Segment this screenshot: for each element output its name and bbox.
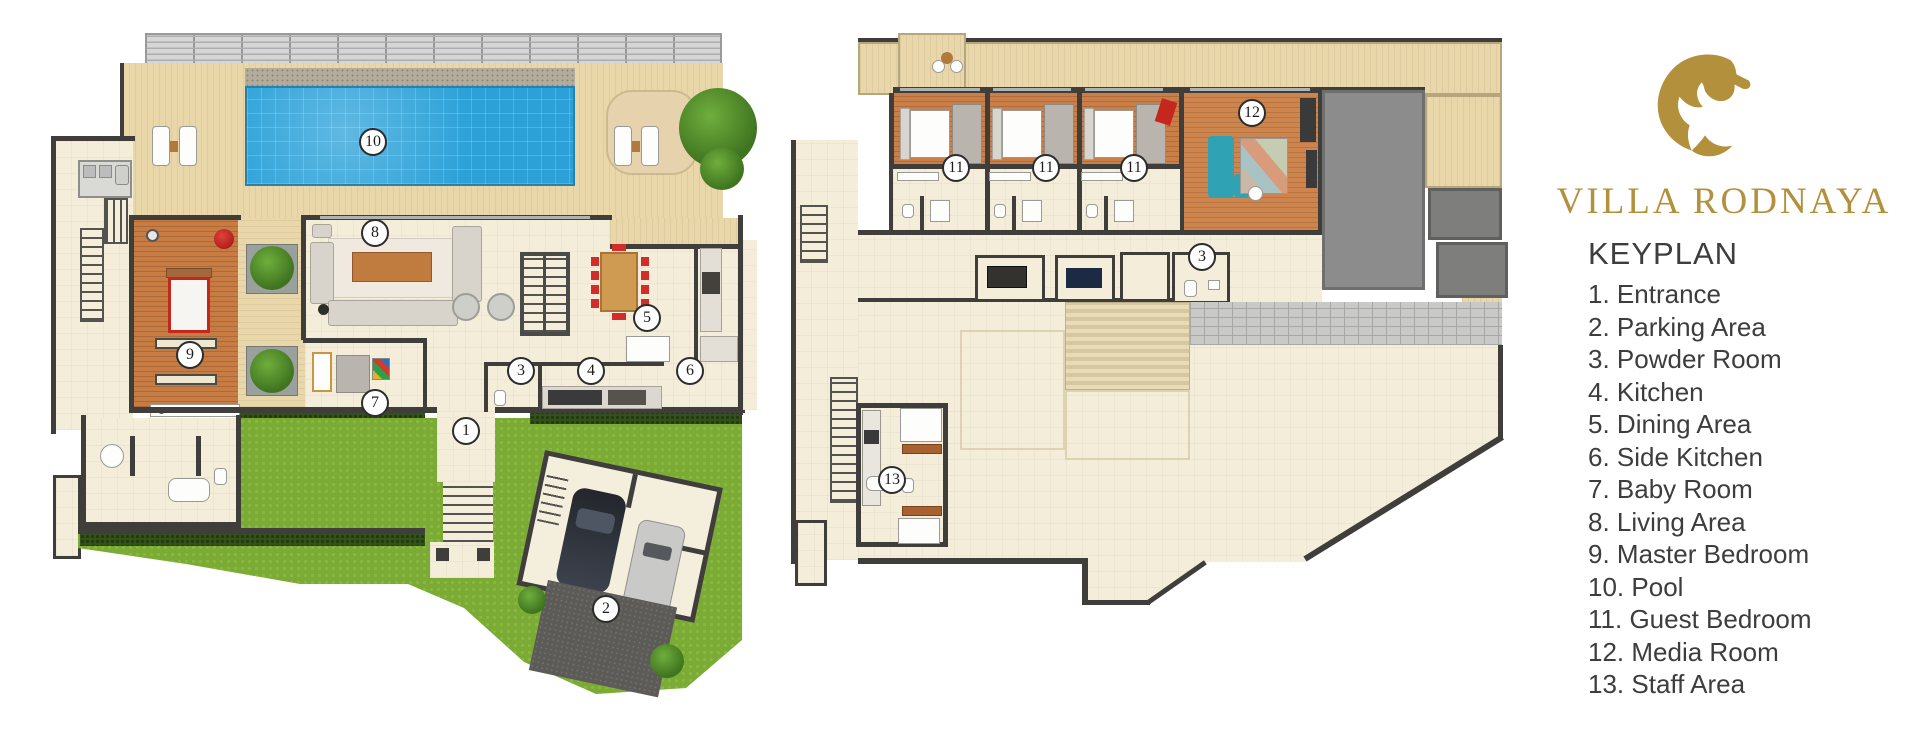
bed-headboard: [900, 108, 910, 160]
upper-terrace-east: [1425, 95, 1502, 188]
item-num: 3.: [1588, 344, 1610, 374]
keyplan-item: 1. Entrance: [1588, 278, 1812, 311]
item-label: Living Area: [1617, 507, 1746, 537]
terrace-notch-wall: [1082, 558, 1088, 604]
keyplan-item: 10. Pool: [1588, 571, 1812, 604]
marker-side-kitchen: 6: [676, 357, 704, 385]
marker-guest-bedroom-1: 11: [942, 154, 970, 182]
staff-wall: [943, 403, 948, 547]
marker-living-area: 8: [361, 219, 389, 247]
terrace-step-edge: [1065, 390, 1190, 460]
staff-wall: [856, 403, 861, 547]
item-num: 2.: [1588, 312, 1610, 342]
media-rug: [1240, 138, 1288, 194]
item-label: Entrance: [1617, 279, 1721, 309]
staff-stove: [864, 430, 879, 444]
roof-box: [1436, 242, 1508, 298]
item-num: 12.: [1588, 637, 1624, 667]
brick-path: [1190, 302, 1502, 345]
guest-bed: [1002, 110, 1042, 158]
keyplan-item: 13. Staff Area: [1588, 668, 1812, 701]
powder-toilet: [1184, 280, 1197, 297]
terrace-south-wall: [858, 558, 1084, 564]
marker-kitchen: 4: [577, 357, 605, 385]
villa-title: VILLA RODNAYA: [1528, 180, 1920, 223]
keyplan-item: 9. Master Bedroom: [1588, 538, 1812, 571]
item-num: 1.: [1588, 279, 1610, 309]
keyplan-item: 4. Kitchen: [1588, 376, 1812, 409]
upper-garden-stair: [830, 377, 858, 503]
item-num: 7.: [1588, 474, 1610, 504]
item-num: 13.: [1588, 669, 1624, 699]
keyplan-legend: KEYPLAN 1. Entrance 2. Parking Area 3. P…: [1588, 236, 1812, 701]
keyplan-item: 12. Media Room: [1588, 636, 1812, 669]
keyplan-heading: KEYPLAN: [1588, 236, 1812, 272]
staff-wardrobe: [902, 444, 942, 454]
guest-bed: [910, 110, 950, 158]
keyplan-item: 6. Side Kitchen: [1588, 441, 1812, 474]
terrace-east-wall: [1498, 345, 1503, 440]
balcony-table: [941, 52, 953, 64]
keyplan-item: 11. Guest Bedroom: [1588, 603, 1812, 636]
keyplan-item: 8. Living Area: [1588, 506, 1812, 539]
ensuite-partition: [1012, 196, 1016, 232]
roof-box: [1428, 188, 1502, 240]
ensuite-toilet: [994, 204, 1006, 218]
balcony-chair: [950, 60, 963, 73]
bed-headboard: [992, 108, 1002, 160]
ensuite-toilet: [1086, 204, 1098, 218]
item-num: 11.: [1588, 604, 1622, 634]
item-num: 10.: [1588, 572, 1624, 602]
terrace-notch-wall: [1082, 600, 1150, 605]
marker-upper-powder-room: 3: [1188, 243, 1216, 271]
item-label: Pool: [1631, 572, 1683, 602]
bed-headboard: [1084, 108, 1094, 160]
marker-pool: 10: [359, 128, 387, 156]
ensuite-vanity: [897, 172, 939, 181]
marker-staff-area: 13: [878, 466, 906, 494]
ensuite-toilet: [902, 204, 914, 218]
upper-west-wall: [791, 140, 796, 564]
hallway-north-wall: [858, 230, 1322, 235]
item-num: 5.: [1588, 409, 1610, 439]
media-glass: [1190, 88, 1310, 91]
horse-logo-icon: [1645, 52, 1767, 174]
item-label: Kitchen: [1617, 377, 1704, 407]
tv-console: [1300, 98, 1316, 142]
powder-sink: [1208, 280, 1220, 290]
terrace-step-edge: [960, 330, 1065, 450]
keyplan-item: 3. Powder Room: [1588, 343, 1812, 376]
item-num: 4.: [1588, 377, 1610, 407]
item-label: Side Kitchen: [1617, 442, 1763, 472]
floorplan-page: 1 2 3 4 5 6 7 8 9 10: [0, 0, 1920, 731]
flat-roof-void: [1322, 90, 1425, 290]
marker-dining-area: 5: [633, 304, 661, 332]
ensuite-vanity: [1081, 172, 1123, 181]
ensuite-partition: [1104, 196, 1108, 232]
ensuite-shower: [930, 200, 950, 222]
item-num: 9.: [1588, 539, 1610, 569]
staff-bed: [898, 518, 940, 544]
marker-media-room: 12: [1238, 99, 1266, 127]
marker-entrance: 1: [452, 417, 480, 445]
brand-panel: VILLA RODNAYA KEYPLAN 1. Entrance 2. Par…: [1520, 20, 1920, 720]
item-label: Guest Bedroom: [1629, 604, 1811, 634]
item-label: Master Bedroom: [1617, 539, 1809, 569]
keyplan-item: 2. Parking Area: [1588, 311, 1812, 344]
upper-stair: [800, 205, 828, 263]
linen-closet: [1120, 252, 1170, 302]
marker-baby-room: 7: [361, 389, 389, 417]
item-num: 6.: [1588, 442, 1610, 472]
slatted-deck: [1065, 302, 1190, 390]
item-label: Baby Room: [1617, 474, 1753, 504]
upper-store: [795, 520, 827, 586]
guest-bed: [1094, 110, 1134, 158]
media-sofa: [1208, 136, 1234, 198]
marker-guest-bedroom-3: 11: [1120, 154, 1148, 182]
keyplan-item: 5. Dining Area: [1588, 408, 1812, 441]
item-label: Media Room: [1631, 637, 1778, 667]
bedroom-glass: [1085, 88, 1163, 91]
staff-bed: [900, 408, 942, 442]
media-cabinet: [1306, 150, 1317, 188]
marker-powder-room: 3: [507, 357, 535, 385]
laptop: [1066, 268, 1102, 288]
staff-kitchen-counter: [862, 410, 881, 506]
marker-master-bedroom: 9: [176, 341, 204, 369]
ensuite-shower: [1022, 200, 1042, 222]
ensuite-shower: [1114, 200, 1134, 222]
marker-guest-bedroom-2: 11: [1032, 154, 1060, 182]
item-num: 8.: [1588, 507, 1610, 537]
bedroom-glass: [900, 88, 980, 91]
ensuite-partition: [920, 196, 924, 232]
keyplan-item: 7. Baby Room: [1588, 473, 1812, 506]
bedroom-glass: [993, 88, 1071, 91]
ensuite-vanity: [989, 172, 1031, 181]
staff-wardrobe: [902, 506, 942, 516]
marker-parking-area: 2: [592, 595, 620, 623]
item-label: Parking Area: [1617, 312, 1766, 342]
item-label: Dining Area: [1617, 409, 1751, 439]
item-label: Powder Room: [1617, 344, 1782, 374]
media-side-table: [1248, 186, 1263, 201]
item-label: Staff Area: [1631, 669, 1745, 699]
pantry-appliance: [987, 266, 1027, 288]
